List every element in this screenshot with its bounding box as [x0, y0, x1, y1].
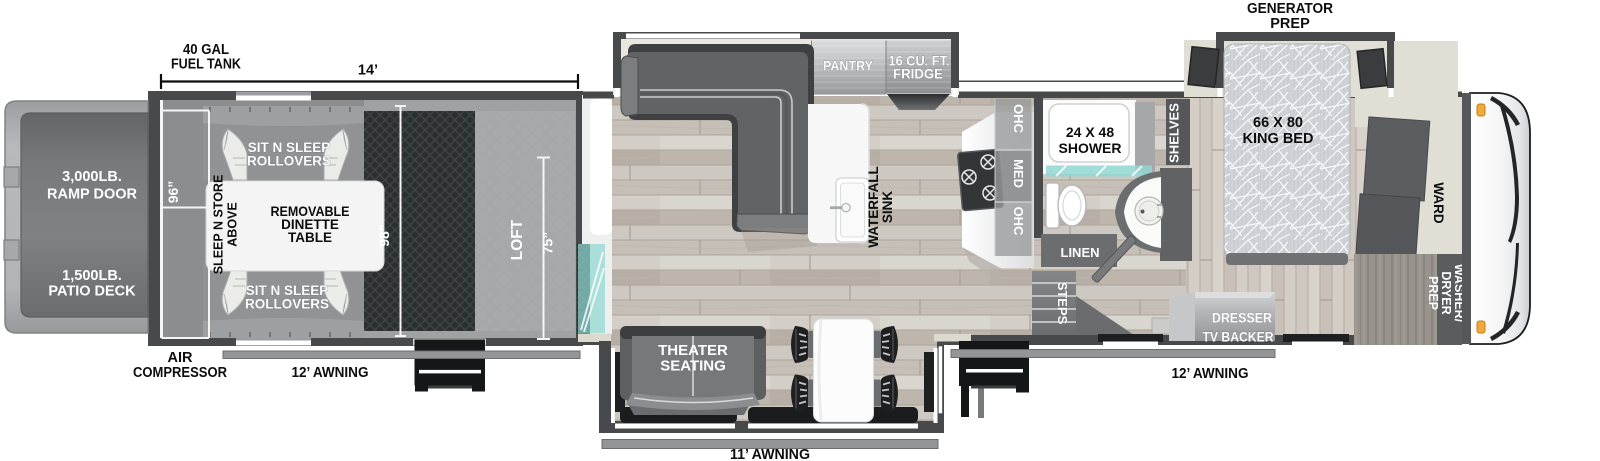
- svg-text:LOFT: LOFT: [509, 219, 526, 260]
- svg-text:66 X 80: 66 X 80: [1253, 115, 1303, 131]
- svg-text:1,500LB.: 1,500LB.: [62, 268, 122, 284]
- svg-text:SINK: SINK: [880, 191, 895, 224]
- svg-text:LINEN: LINEN: [1061, 245, 1100, 260]
- svg-text:96”: 96”: [165, 181, 181, 204]
- svg-text:TV BACKER: TV BACKER: [1203, 330, 1274, 345]
- svg-text:FRIDGE: FRIDGE: [893, 67, 943, 82]
- svg-text:THEATER: THEATER: [658, 342, 728, 359]
- svg-text:GENERATOR: GENERATOR: [1247, 1, 1333, 17]
- svg-text:SHELVES: SHELVES: [1167, 103, 1182, 163]
- svg-text:ROLLOVERS: ROLLOVERS: [245, 297, 329, 312]
- svg-text:24 X 48: 24 X 48: [1066, 124, 1114, 140]
- svg-text:STEPS: STEPS: [1055, 282, 1070, 325]
- svg-text:PANTRY: PANTRY: [823, 58, 874, 74]
- svg-text:MED: MED: [1011, 159, 1026, 188]
- svg-text:RAMP DOOR: RAMP DOOR: [47, 187, 137, 203]
- svg-text:12’ AWNING: 12’ AWNING: [1172, 366, 1249, 382]
- svg-text:FUEL TANK: FUEL TANK: [171, 57, 241, 73]
- svg-text:COMPRESSOR: COMPRESSOR: [133, 365, 227, 381]
- svg-text:ABOVE: ABOVE: [226, 202, 240, 246]
- svg-text:DRYER: DRYER: [1439, 271, 1453, 314]
- svg-text:SHOWER: SHOWER: [1059, 140, 1122, 156]
- svg-text:KING BED: KING BED: [1243, 131, 1314, 147]
- svg-text:PREP: PREP: [1426, 276, 1440, 310]
- svg-text:OHC: OHC: [1011, 104, 1026, 134]
- svg-text:98”: 98”: [376, 224, 392, 247]
- svg-text:3,000LB.: 3,000LB.: [62, 169, 122, 185]
- svg-text:TABLE: TABLE: [288, 230, 332, 245]
- svg-text:PATIO DECK: PATIO DECK: [48, 284, 136, 300]
- svg-text:OHC: OHC: [1011, 207, 1026, 237]
- svg-text:12’ AWNING: 12’ AWNING: [292, 365, 369, 381]
- svg-text:75”: 75”: [540, 232, 556, 255]
- svg-text:PREP: PREP: [1270, 16, 1310, 32]
- svg-text:SEATING: SEATING: [660, 358, 726, 375]
- svg-text:AIR: AIR: [168, 350, 194, 366]
- svg-text:14’: 14’: [358, 63, 378, 79]
- svg-text:WATERFALL: WATERFALL: [866, 166, 881, 248]
- svg-text:11’ AWNING: 11’ AWNING: [730, 446, 810, 461]
- svg-text:WARD: WARD: [1431, 182, 1446, 223]
- svg-text:ROLLOVERS: ROLLOVERS: [247, 154, 331, 169]
- svg-text:SLEEP N STORE: SLEEP N STORE: [212, 175, 226, 275]
- svg-text:DRESSER: DRESSER: [1212, 311, 1272, 326]
